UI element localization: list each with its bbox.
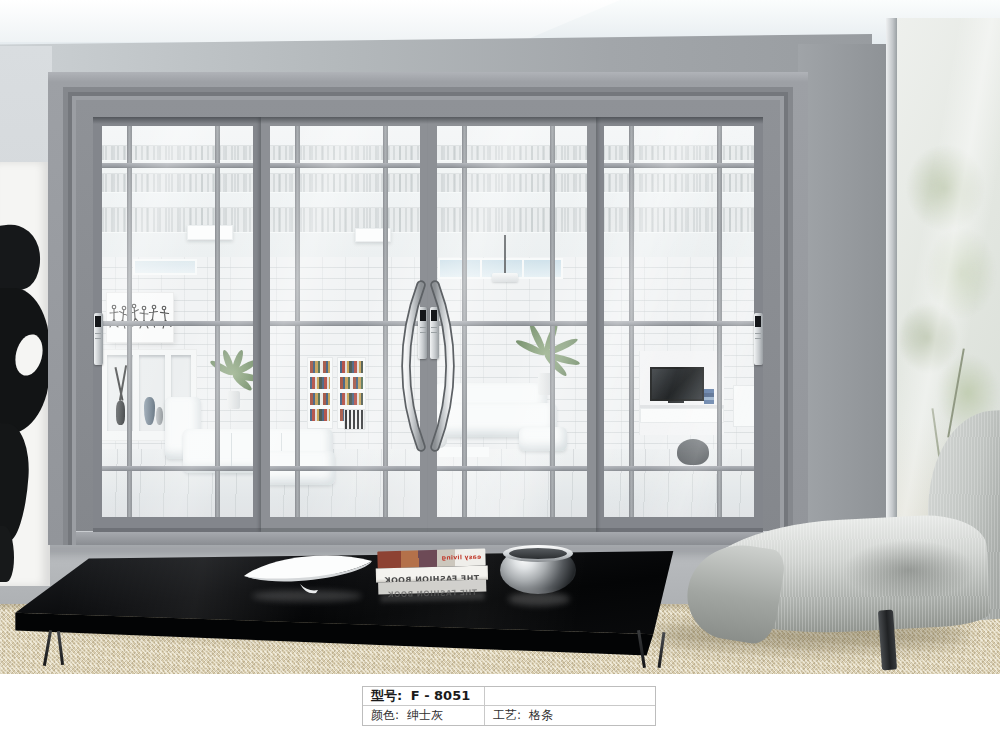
door-lock bbox=[94, 313, 103, 365]
lounge-chair bbox=[634, 412, 1000, 676]
spec-cell-empty bbox=[485, 687, 655, 705]
product-spec-table: 型号: F - 8051 颜色: 绅士灰 工艺: 格条 bbox=[362, 686, 656, 726]
table-leg bbox=[57, 631, 64, 665]
art-brushstroke bbox=[0, 423, 32, 543]
spec-model-value: F - 8051 bbox=[411, 688, 471, 703]
coffee-table: easy living THE FASHION BOOK THE FASHION… bbox=[12, 546, 680, 672]
ceiling-fascia bbox=[0, 0, 620, 42]
bowl-inner bbox=[509, 548, 567, 559]
art-brushstroke bbox=[0, 221, 44, 292]
silver-bowl bbox=[500, 546, 576, 594]
lock-detail-line bbox=[95, 333, 101, 334]
chair-front-lip bbox=[681, 537, 787, 646]
spec-cell-color: 颜色: 绅士灰 bbox=[363, 706, 485, 725]
lock-display bbox=[95, 316, 101, 327]
magazine-stack: easy living THE FASHION BOOK THE FASHION… bbox=[375, 549, 488, 608]
spec-model-label: 型号: bbox=[371, 688, 402, 703]
glass-reflection bbox=[102, 126, 253, 517]
lock-detail-line bbox=[95, 338, 101, 339]
dish-reflection bbox=[252, 590, 362, 602]
spec-craft-label: 工艺: bbox=[493, 708, 521, 722]
spec-cell-model: 型号: F - 8051 bbox=[363, 687, 485, 705]
product-photo-sliding-door: easy living THE FASHION BOOK THE FASHION… bbox=[0, 0, 1000, 736]
spec-color-value: 绅士灰 bbox=[407, 708, 443, 722]
arc-pull-handle-right bbox=[429, 275, 469, 457]
lock-detail-line bbox=[755, 333, 761, 334]
magazine-cover-text: easy living bbox=[442, 553, 482, 561]
spec-craft-value: 格条 bbox=[529, 708, 553, 722]
bowl-reflection bbox=[508, 592, 570, 606]
chair-seat-dip-shadow bbox=[844, 540, 974, 600]
door-panel-1 bbox=[93, 117, 262, 532]
art-brushstroke bbox=[0, 288, 50, 434]
white-dish bbox=[238, 548, 378, 594]
top-track-shadow bbox=[93, 117, 763, 124]
table-leg bbox=[43, 630, 52, 666]
lock-display bbox=[755, 316, 761, 327]
spec-cell-craft: 工艺: 格条 bbox=[485, 706, 655, 725]
arc-pull-handle-left bbox=[387, 275, 427, 457]
spec-row-color-craft: 颜色: 绅士灰 工艺: 格条 bbox=[363, 705, 655, 725]
spec-color-label: 颜色: bbox=[371, 708, 399, 722]
spec-row-model: 型号: F - 8051 bbox=[363, 687, 655, 705]
door-lock bbox=[754, 313, 763, 365]
lock-detail-line bbox=[755, 338, 761, 339]
wall-art-canvas bbox=[0, 162, 50, 586]
art-negative-space bbox=[11, 331, 46, 378]
magazine-reflection bbox=[380, 592, 484, 603]
